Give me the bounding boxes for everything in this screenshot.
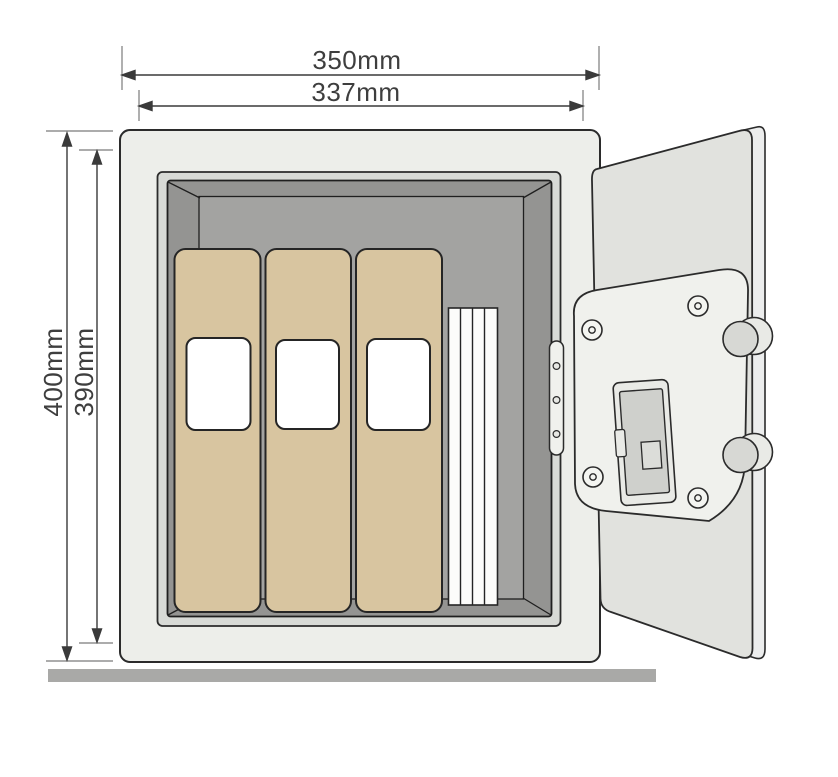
- label-outer-height: 400mm: [38, 327, 68, 416]
- arrow-up-400: [63, 133, 72, 146]
- label-inner-width: 337mm: [311, 77, 400, 107]
- arrow-down-400: [63, 647, 72, 660]
- binder-2: [266, 249, 352, 612]
- binder-2-label: [276, 340, 339, 429]
- binder-3-label: [367, 339, 430, 430]
- arrow-left-337: [139, 102, 152, 111]
- document-stack: [449, 308, 498, 605]
- binders-group: [175, 249, 443, 612]
- label-outer-width: 350mm: [312, 45, 401, 75]
- label-inner-height: 390mm: [69, 327, 99, 416]
- safe-dimension-diagram: 350mm 337mm 400mm 390mm: [0, 0, 838, 777]
- plate-screw-top-left: [582, 320, 602, 340]
- arrow-up-390: [93, 151, 102, 164]
- arrow-left-350: [122, 71, 135, 80]
- hinge: [550, 341, 564, 455]
- hinge-screw-1: [553, 363, 560, 370]
- lock-housing: [611, 379, 676, 506]
- hinge-screw-2: [553, 397, 560, 404]
- lock-housing-latch-tab: [615, 429, 627, 457]
- arrow-down-390: [93, 629, 102, 642]
- diagram-svg: 350mm 337mm 400mm 390mm: [0, 0, 838, 777]
- lock-housing-window: [641, 441, 662, 469]
- plate-screw-bottom-left: [583, 467, 603, 487]
- ground-bar: [48, 669, 656, 682]
- arrow-right-350: [586, 71, 599, 80]
- plate-screw-bottom-right: [688, 488, 708, 508]
- binder-1-label: [187, 338, 251, 430]
- arrow-right-337: [570, 102, 583, 111]
- plate-screw-top-right: [688, 296, 708, 316]
- hinge-screw-3: [553, 431, 560, 438]
